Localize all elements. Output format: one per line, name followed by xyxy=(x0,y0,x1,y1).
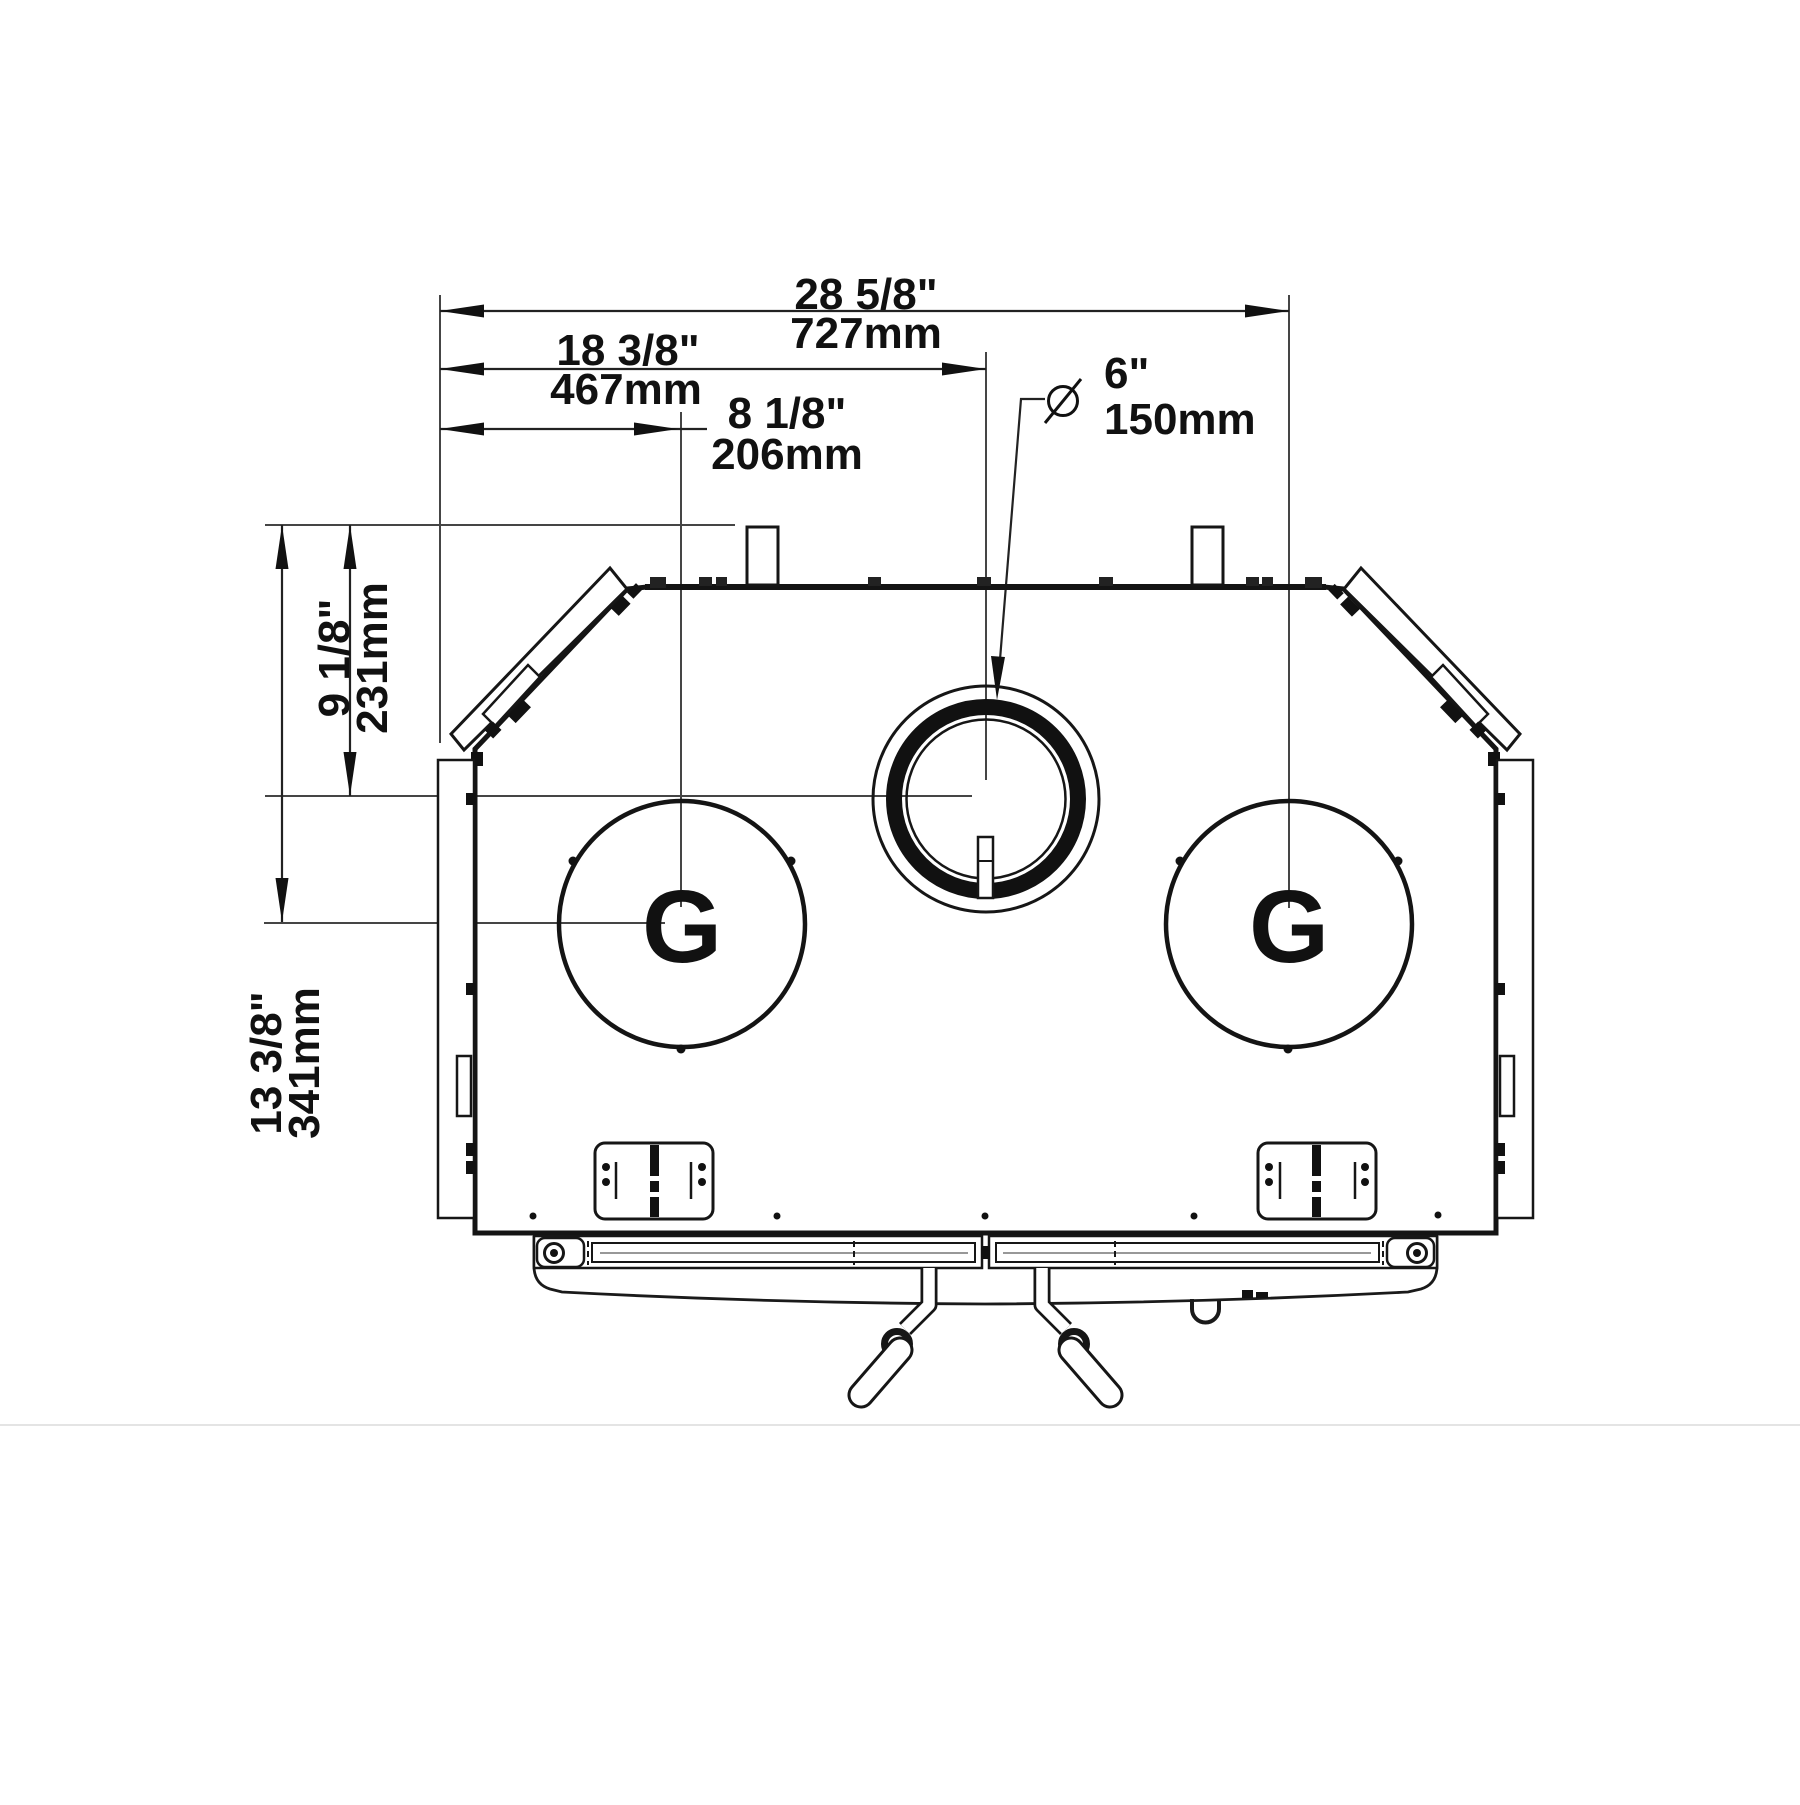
svg-text:206mm: 206mm xyxy=(711,430,863,479)
svg-text:G: G xyxy=(642,869,722,984)
svg-text:467mm: 467mm xyxy=(550,365,702,414)
svg-text:727mm: 727mm xyxy=(790,309,942,358)
svg-text:G: G xyxy=(1249,869,1329,984)
svg-text:150mm: 150mm xyxy=(1104,395,1256,444)
svg-text:231mm: 231mm xyxy=(348,582,397,734)
svg-text:6": 6" xyxy=(1104,349,1149,398)
svg-text:341mm: 341mm xyxy=(280,987,329,1139)
